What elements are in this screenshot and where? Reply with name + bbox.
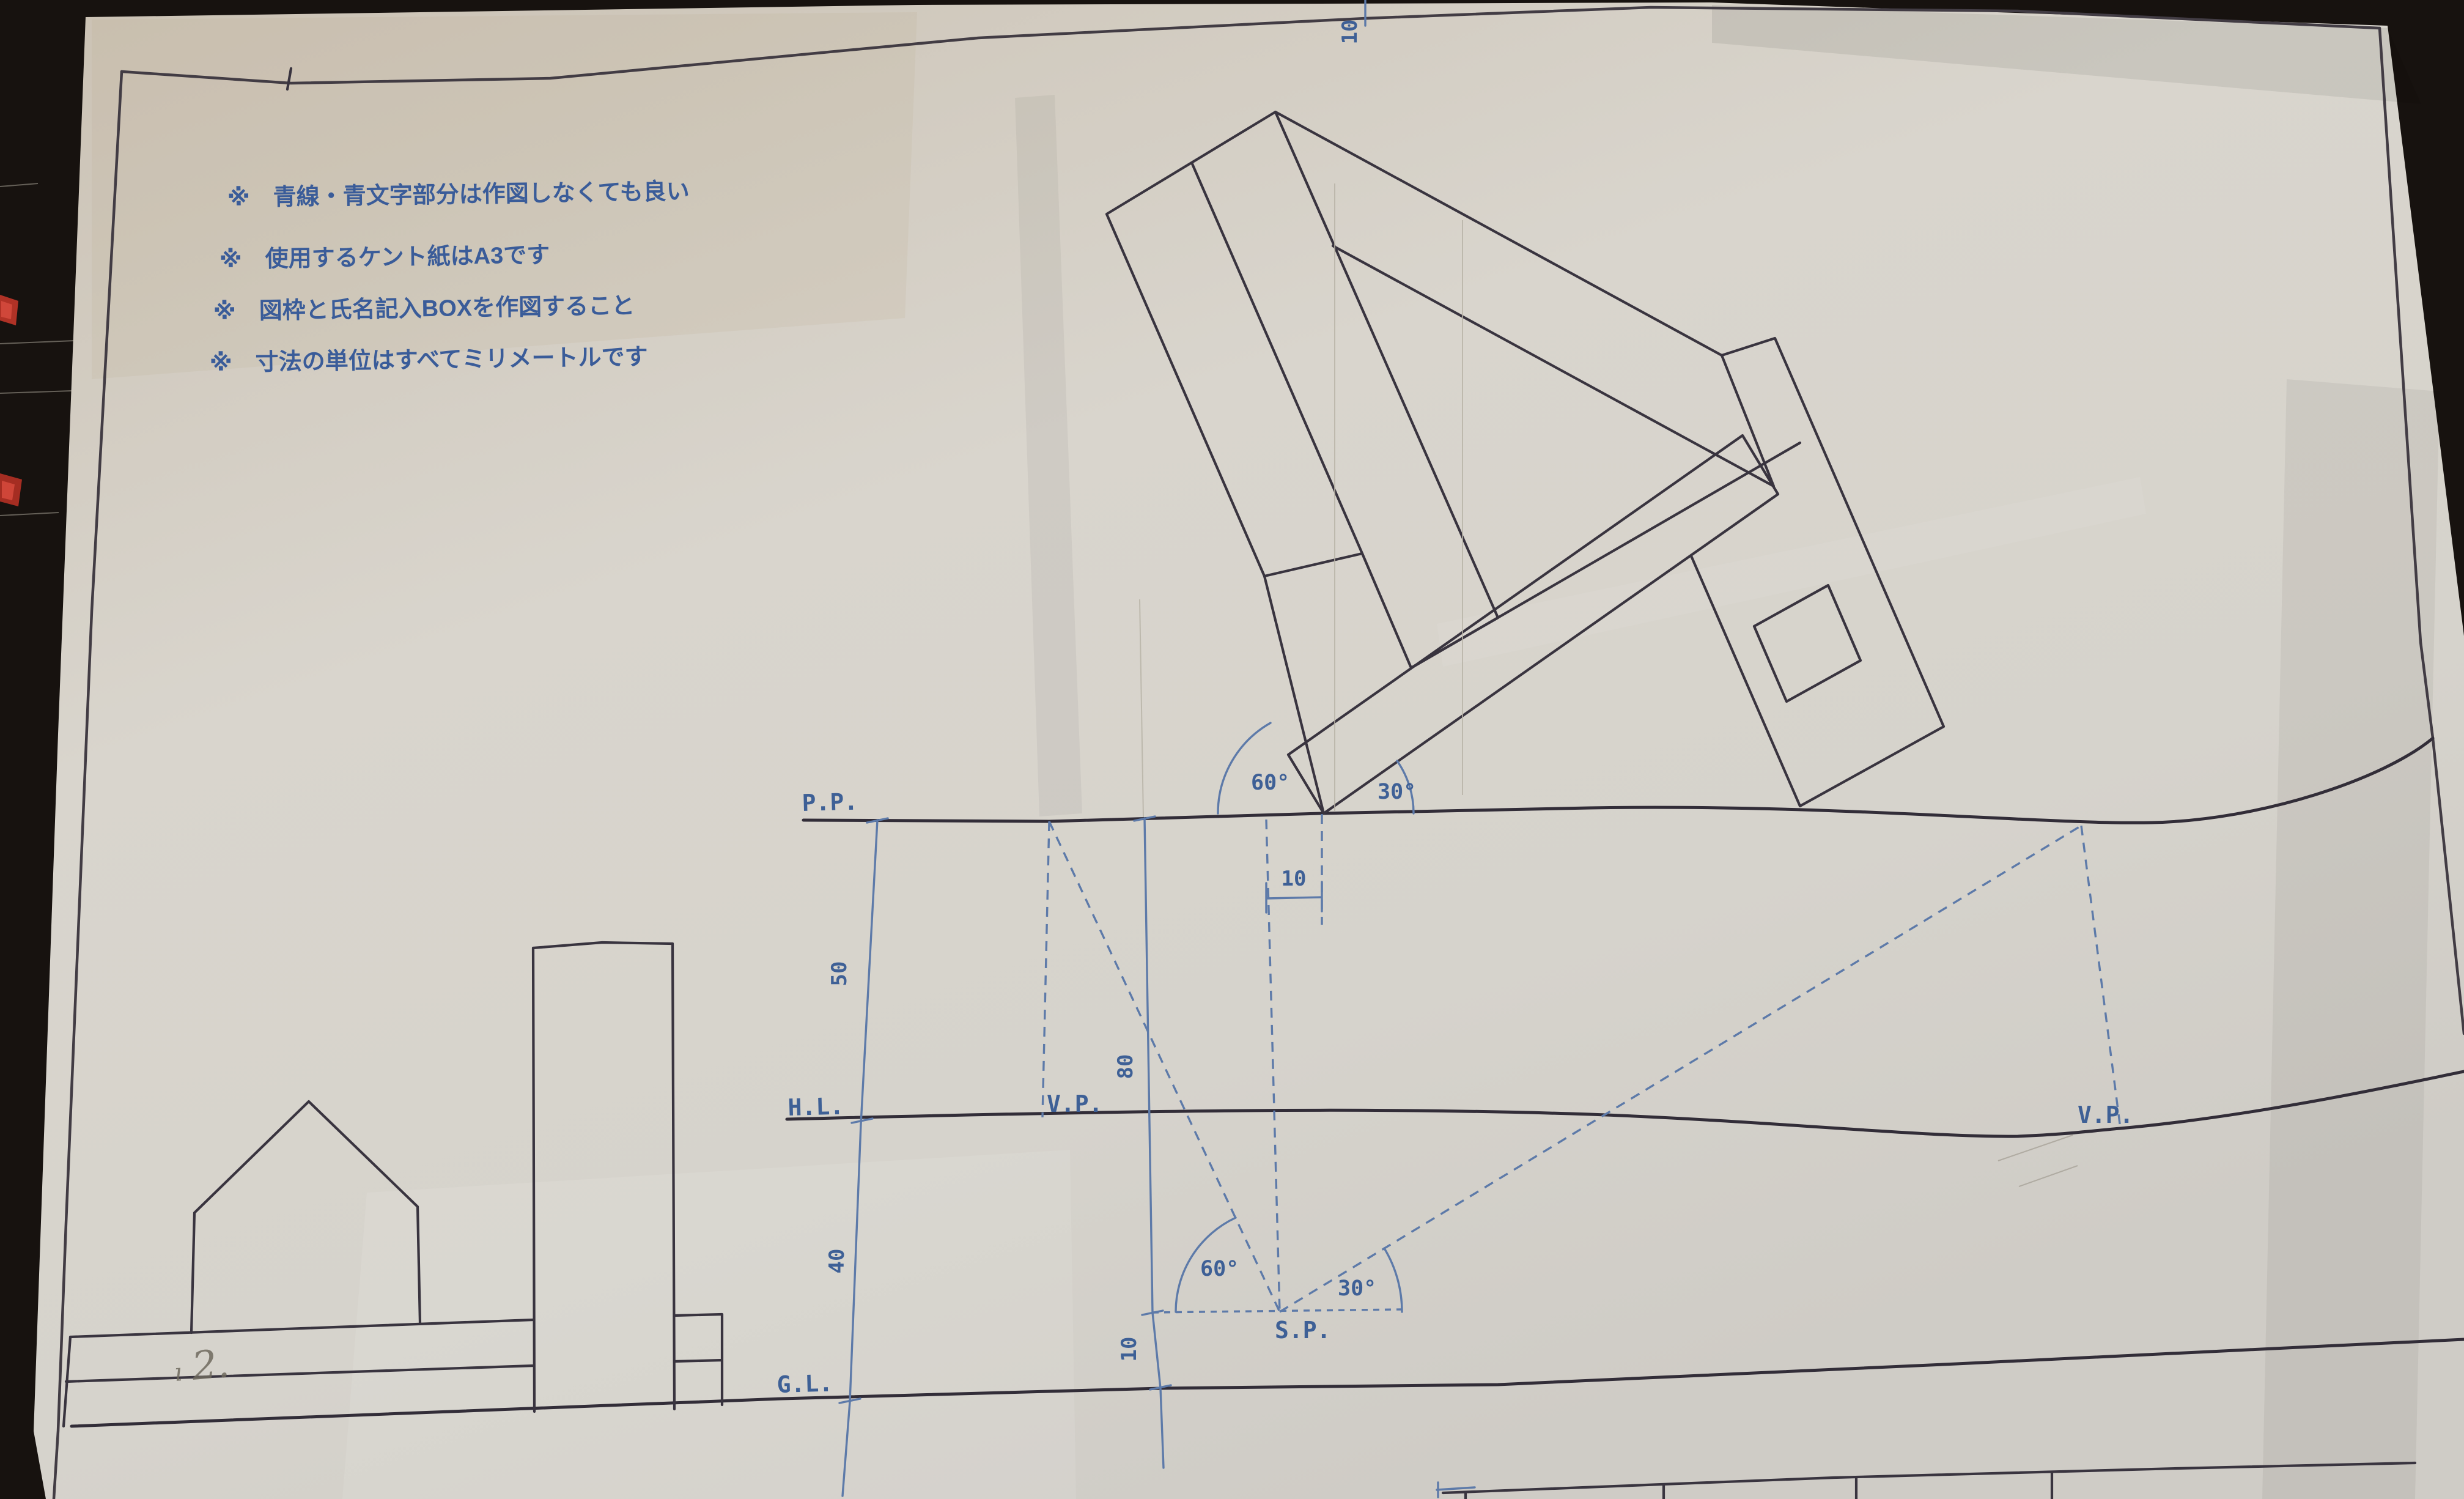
- gl-label: G.L.: [776, 1370, 833, 1398]
- desk-wood-streak-1: [0, 183, 38, 187]
- angle-60-label-at-pp: 60°: [1251, 771, 1289, 795]
- dim-80-label: 80: [1113, 1054, 1138, 1079]
- angle-30-label-at-pp: 30°: [1378, 780, 1416, 804]
- dim-10-left-label: 10: [1117, 1337, 1142, 1362]
- dim-50-label: 50: [827, 961, 852, 986]
- dim-10-top-label: 10: [1338, 20, 1362, 45]
- note-line-2: ※ 使用するケント紙はA3です: [219, 242, 550, 273]
- dim-10-corner-label: 10: [1282, 867, 1307, 891]
- sp-label: S.P.: [1275, 1317, 1331, 1344]
- vp-left-label: V.P.: [1047, 1090, 1103, 1117]
- pp-label: P.P.: [802, 788, 858, 816]
- dim-40-label: 40: [825, 1249, 849, 1274]
- vp-right-label: V.P.: [2078, 1101, 2134, 1128]
- handwritten-number: 2.: [190, 1341, 231, 1390]
- paper-highlight-bottomleft: [342, 1150, 1076, 1499]
- hl-label: H.L.: [788, 1093, 844, 1121]
- photo-of-drafting-sheet: ※ 青線・青文字部分は作図しなくても良い※ 使用するケント紙はA3です※ 図枠と…: [0, 0, 2464, 1499]
- desk-wood-streak-4: [0, 513, 59, 516]
- angle-60-label-at-sp: 60°: [1200, 1257, 1239, 1281]
- desk-wood-streak-3: [0, 391, 72, 393]
- angle-30-label-at-sp: 30°: [1338, 1276, 1376, 1301]
- drawing-svg: ※ 青線・青文字部分は作図しなくても良い※ 使用するケント紙はA3です※ 図枠と…: [0, 0, 2464, 1499]
